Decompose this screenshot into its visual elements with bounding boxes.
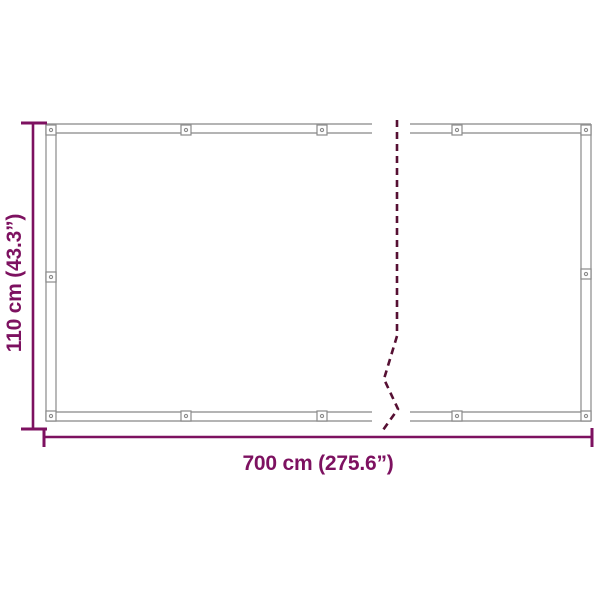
- break-line-icon: [383, 120, 398, 430]
- mounting-clip-icon: [317, 411, 327, 421]
- dimension-diagram: 110 cm (43.3”) 700 cm (275.6”): [0, 0, 600, 600]
- screen-frame: [46, 124, 591, 421]
- width-dimension-label: 700 cm (275.6”): [168, 452, 468, 478]
- mounting-clip-icon: [46, 125, 56, 135]
- width-dimension: [44, 428, 592, 447]
- height-dimension-label: 110 cm (43.3”): [3, 133, 29, 433]
- mounting-clip-icon: [452, 125, 462, 135]
- mounting-clip-icon: [452, 411, 462, 421]
- mounting-clip-icon: [317, 125, 327, 135]
- mounting-clips: [46, 125, 591, 421]
- mounting-clip-icon: [181, 411, 191, 421]
- mounting-clip-icon: [581, 125, 591, 135]
- mounting-clip-icon: [46, 411, 56, 421]
- mounting-clip-icon: [581, 269, 591, 279]
- mounting-clip-icon: [46, 272, 56, 282]
- diagram-canvas: [0, 0, 600, 600]
- mounting-clip-icon: [581, 411, 591, 421]
- mounting-clip-icon: [181, 125, 191, 135]
